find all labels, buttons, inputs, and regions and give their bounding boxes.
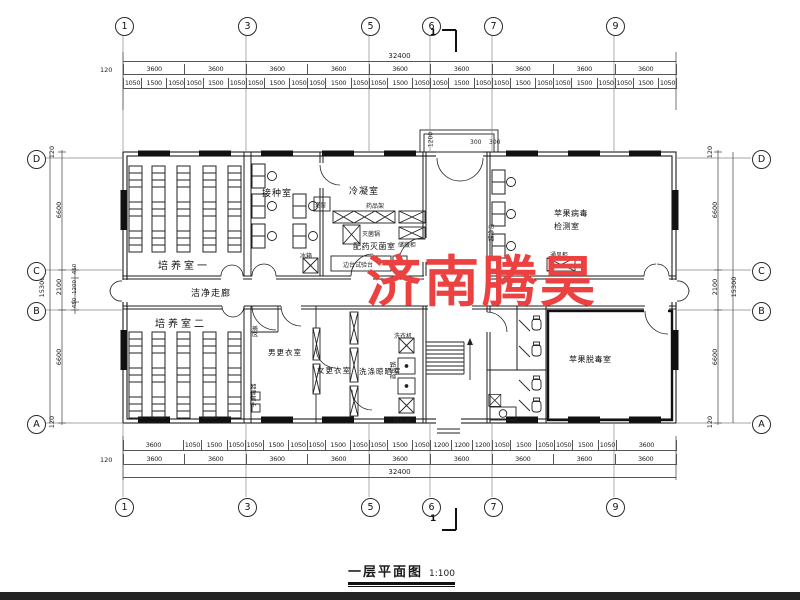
equip-label-pass-window: 递窗 bbox=[315, 201, 326, 209]
room-label-detox: 苹果脱毒室 bbox=[569, 354, 612, 365]
top-edge-dim: 120 bbox=[100, 66, 112, 74]
watermark-text: 济南腾昊 bbox=[366, 252, 598, 313]
section-mark-label: 1 bbox=[430, 514, 436, 524]
room-label-virus-test-1: 苹果病毒 bbox=[554, 208, 588, 219]
equip-label-air-shower: 风淋 bbox=[251, 323, 260, 341]
room-label-inoculation: 接种室 bbox=[262, 186, 292, 199]
equip-label-autoclave: 高压锅 bbox=[389, 358, 398, 384]
room-label-culture1: 培养室一 bbox=[158, 257, 210, 272]
equip-label-pure-water: 纯水机 bbox=[393, 416, 411, 425]
room-label-corridor: 洁净走廊 bbox=[191, 286, 231, 299]
detox-room-wall bbox=[548, 311, 672, 420]
bottom-bay-dims: 360036003600360036003600360036003600 bbox=[123, 454, 677, 465]
section-mark-label: 1 bbox=[430, 28, 436, 38]
porch-w2-dim: 300 bbox=[489, 139, 500, 146]
floor-plan-page: 1 3 5 6 7 9 1 3 5 6 7 9 D C B A D C B A … bbox=[0, 0, 800, 600]
grid-bubble-row: C bbox=[752, 262, 771, 281]
room-label-virus-test-2: 检测室 bbox=[554, 221, 580, 232]
right-seg-dim: 6600 bbox=[711, 195, 719, 225]
title-block: 一层平面图1:100 bbox=[348, 561, 455, 587]
room-label-condensation: 冷凝室 bbox=[349, 184, 379, 197]
grid-bubble-col: 3 bbox=[238, 498, 257, 517]
left-seg-dim: 6600 bbox=[55, 195, 63, 225]
grid-bubble-col: 1 bbox=[115, 17, 134, 36]
grid-bubble-row: A bbox=[27, 415, 46, 434]
grid-bubble-col: 1 bbox=[115, 498, 134, 517]
equip-label-sterilizer: 灭菌锅 bbox=[362, 229, 380, 238]
right-edge-top-dim: 120 bbox=[706, 142, 714, 162]
equip-label-fridge: 冰箱 bbox=[300, 251, 312, 260]
grid-bubble-row: B bbox=[27, 302, 46, 321]
grid-bubble-col: 3 bbox=[238, 17, 257, 36]
equip-label-storage: 储藏柜 bbox=[398, 240, 416, 249]
right-total-dim: 15300 bbox=[730, 269, 738, 305]
detox-door-gap bbox=[644, 308, 668, 314]
title-underline-thin bbox=[348, 586, 455, 587]
room-label-men-changing: 男更衣室 bbox=[268, 347, 302, 358]
right-seg-dim: 2100 bbox=[711, 272, 719, 302]
equip-label-rack: 药品架 bbox=[366, 201, 384, 210]
room-label-culture2: 培养室二 bbox=[155, 315, 207, 330]
grid-bubble-row: D bbox=[752, 150, 771, 169]
grid-bubble-col: 5 bbox=[361, 17, 380, 36]
left-seg-dim: 2100 bbox=[55, 272, 63, 302]
grid-bubble-row: D bbox=[27, 150, 46, 169]
bottom-detail-dims: 3600105015001050105015001050105015001050… bbox=[123, 440, 677, 451]
bottom-bar bbox=[0, 592, 800, 600]
room-label-women-changing: 女更衣室 bbox=[317, 365, 351, 376]
porch-w1-dim: 300 bbox=[470, 139, 481, 146]
title-underline-thick bbox=[348, 582, 455, 585]
top-total-dim: 32400 bbox=[123, 52, 676, 62]
top-detail-dims: 1050150010501050150010501050150010501050… bbox=[123, 78, 677, 89]
drawing-scale: 1:100 bbox=[429, 569, 455, 579]
grid-bubble-col: 5 bbox=[361, 498, 380, 517]
left-inner-dim: 450 bbox=[72, 292, 78, 314]
grid-bubble-col: 7 bbox=[484, 498, 503, 517]
grid-bubble-row: C bbox=[27, 262, 46, 281]
grid-bubble-row: A bbox=[752, 415, 771, 434]
grid-bubble-col: 9 bbox=[606, 498, 625, 517]
equip-label-hand-sterilizer: 手消毒器 bbox=[249, 383, 258, 409]
toilet-fixtures bbox=[489, 316, 541, 420]
porch-depth-dim: 1200 bbox=[428, 128, 435, 152]
grid-bubble-row: B bbox=[752, 302, 771, 321]
bottom-edge-dim: 120 bbox=[100, 456, 112, 464]
inoculation-benches bbox=[252, 164, 318, 248]
grid-bubble-col: 9 bbox=[606, 17, 625, 36]
top-bay-dims: 360036003600360036003600360036003600 bbox=[123, 64, 677, 75]
left-seg-dim: 6600 bbox=[55, 342, 63, 372]
drawing-title: 一层平面图 bbox=[348, 561, 423, 580]
equip-label-washer: 洗衣机 bbox=[394, 331, 412, 340]
right-edge-bottom-dim: 120 bbox=[706, 412, 714, 432]
bottom-total-dim: 32400 bbox=[123, 468, 676, 478]
right-seg-dim: 6600 bbox=[711, 342, 719, 372]
left-edge-top-dim: 120 bbox=[48, 142, 56, 162]
grid-bubble-col: 7 bbox=[484, 17, 503, 36]
left-edge-bottom-dim: 120 bbox=[48, 412, 56, 432]
equip-label-clean-bench: 超净台 bbox=[487, 222, 496, 244]
